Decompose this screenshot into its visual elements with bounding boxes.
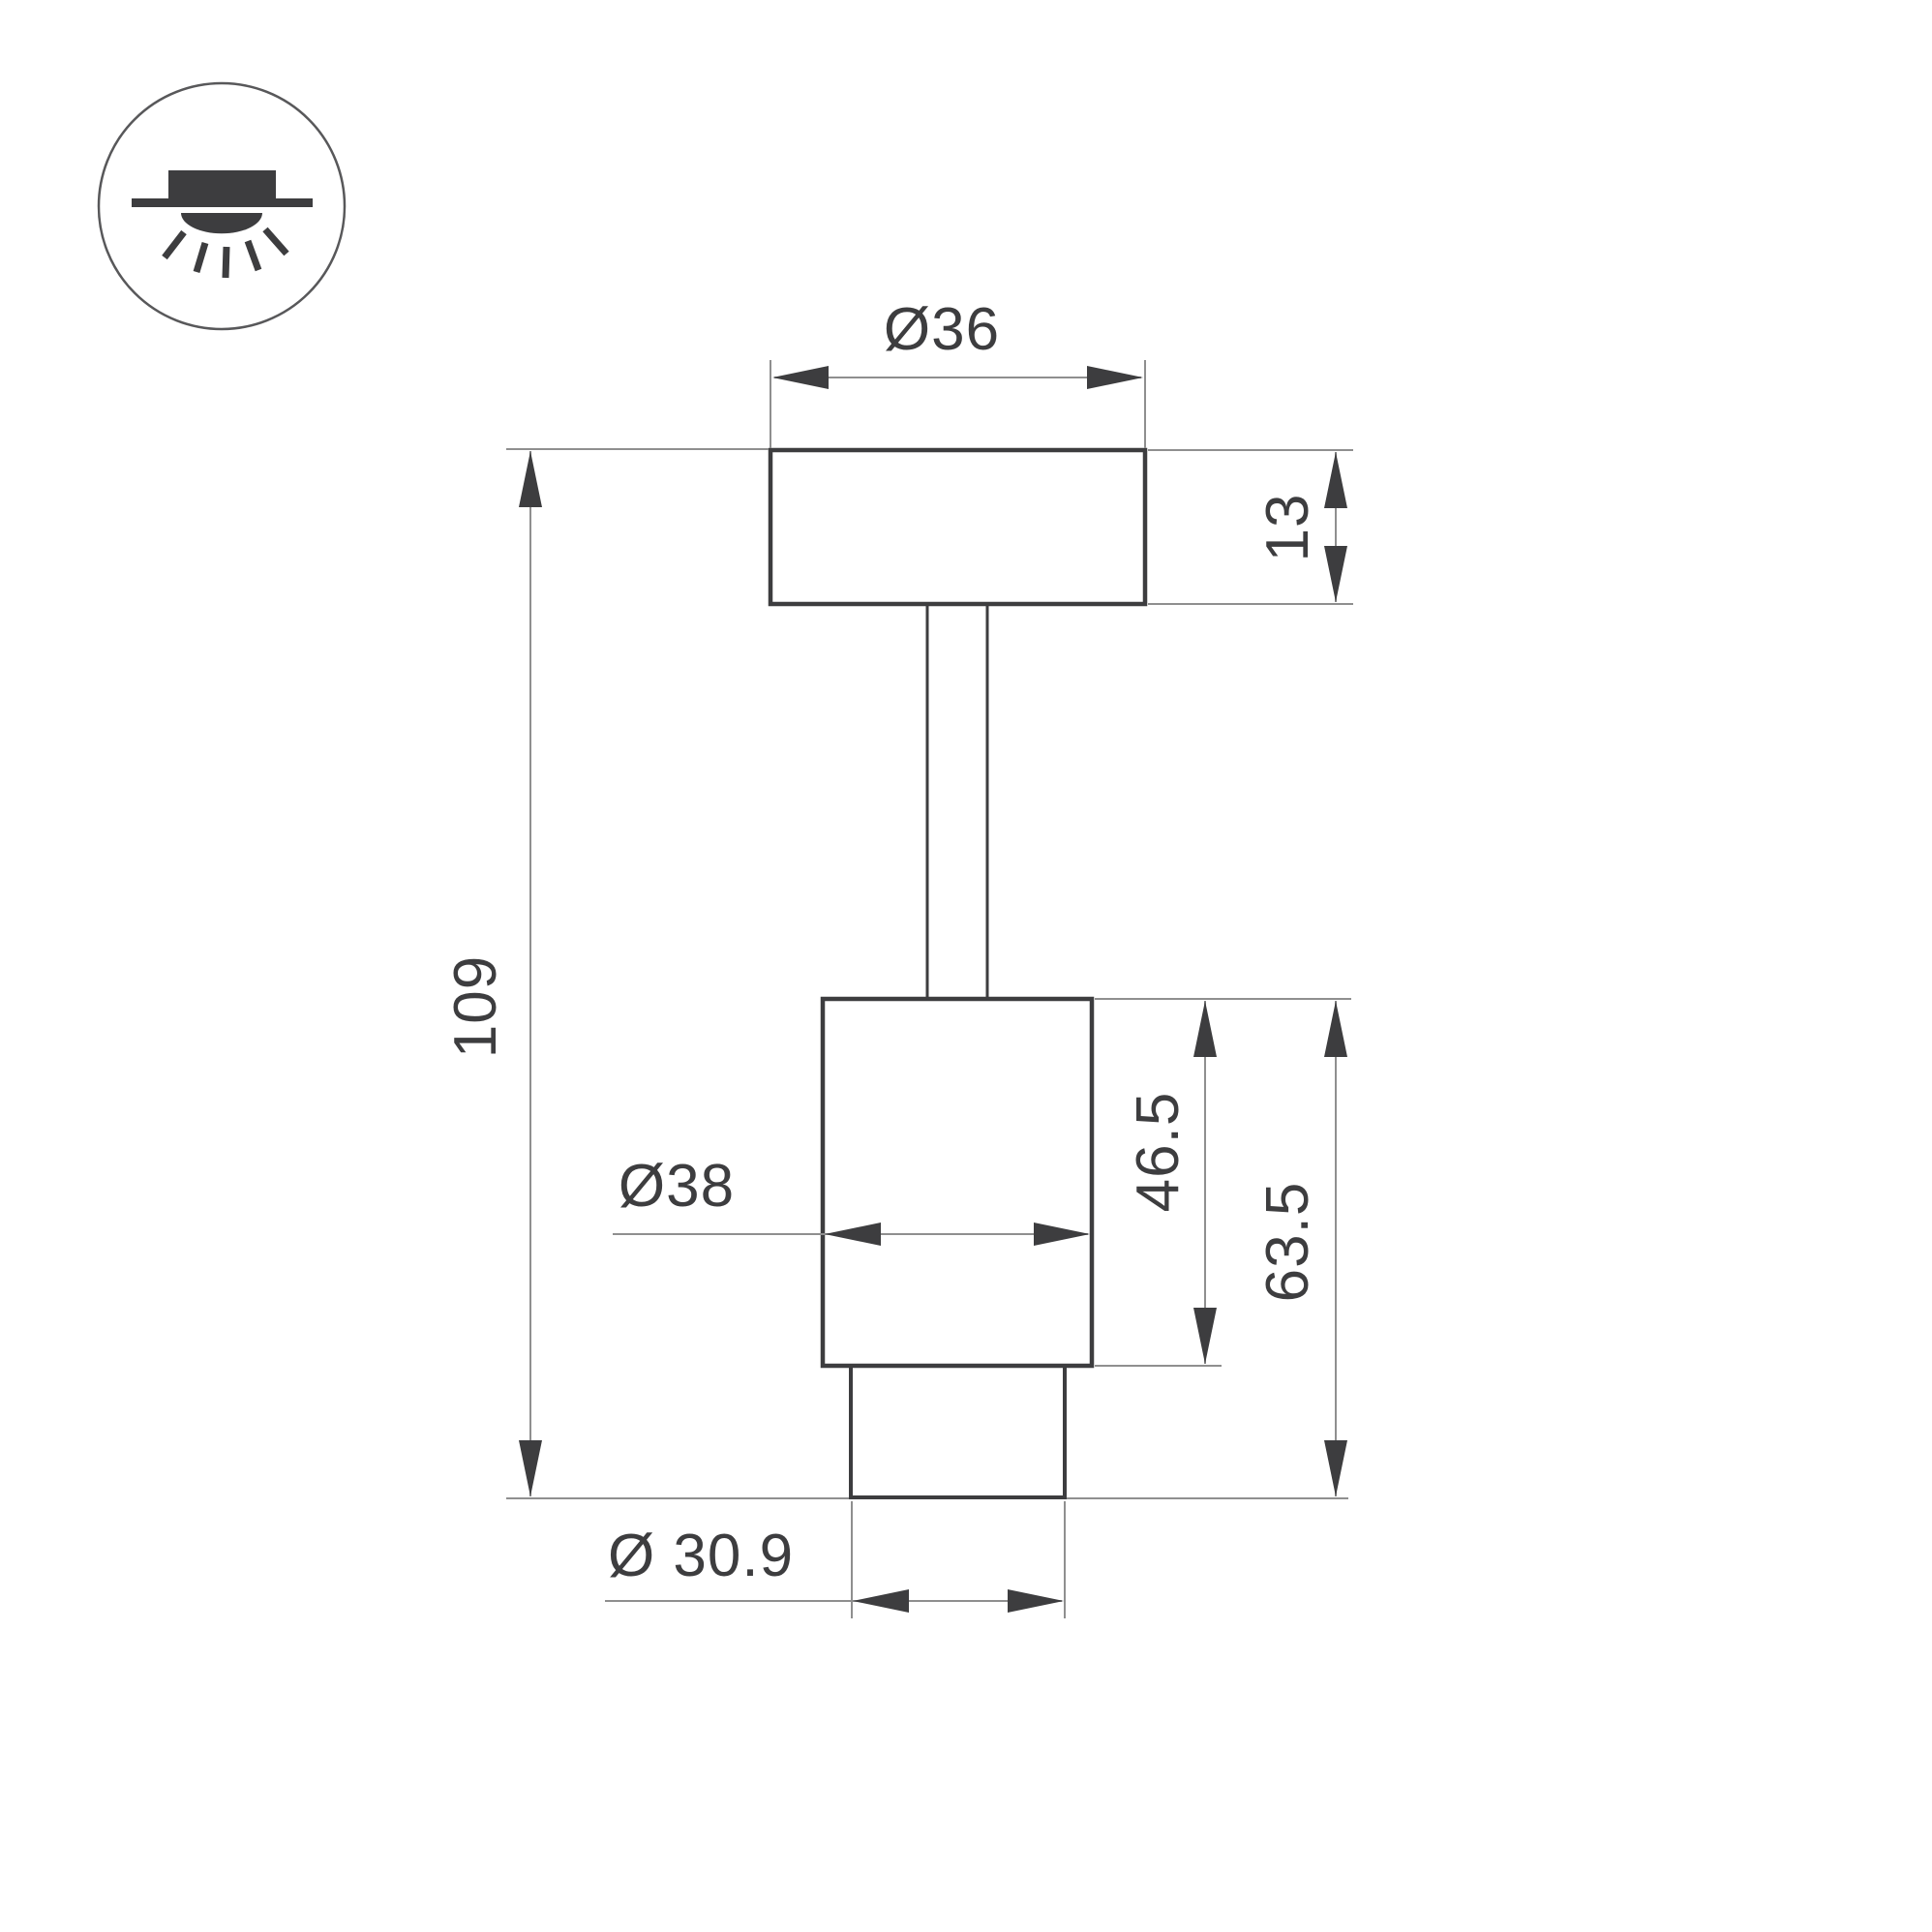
arrowhead-up (1324, 452, 1347, 508)
ceiling-downlight-icon (99, 83, 345, 329)
arrowhead-down (519, 1440, 542, 1496)
fixture-dimension-drawing (0, 0, 1932, 1932)
label-body-diameter: Ø38 (619, 1157, 735, 1217)
dimension-body-and-trim-height (1324, 1001, 1347, 1496)
label-plate-thickness: 13 (1258, 494, 1318, 562)
arrowhead-right (1008, 1589, 1064, 1613)
label-body-height: 46.5 (1129, 1092, 1189, 1213)
arrowhead-down (1324, 1440, 1347, 1496)
fixture-body (823, 999, 1092, 1366)
arrowhead-right (1087, 366, 1143, 389)
arrowhead-left (772, 366, 829, 389)
dimension-plate-thickness (1148, 450, 1353, 604)
label-body-and-trim-height: 63.5 (1258, 1182, 1318, 1303)
fixture-stem (927, 604, 987, 999)
arrowhead-down (1193, 1308, 1217, 1364)
label-top-diameter: Ø36 (884, 300, 1000, 360)
icon-lamp-housing (168, 170, 276, 203)
fixture-trim-cylinder (851, 1366, 1065, 1497)
arrowhead-left (853, 1589, 909, 1613)
arrowhead-up (519, 451, 542, 507)
technical-drawing-page: Ø36 13 109 Ø38 46.5 63.5 Ø 30.9 (0, 0, 1932, 1932)
dimension-top-diameter (770, 360, 1145, 448)
label-overall-height: 109 (446, 955, 506, 1058)
fixture-outline (770, 450, 1145, 1497)
arrowhead-down (1324, 546, 1347, 602)
arrowhead-up (1324, 1001, 1347, 1057)
fixture-mounting-plate (770, 450, 1145, 604)
label-trim-diameter: Ø 30.9 (608, 1526, 794, 1586)
icon-ceiling-line (132, 198, 313, 207)
arrowhead-up (1193, 1001, 1217, 1057)
